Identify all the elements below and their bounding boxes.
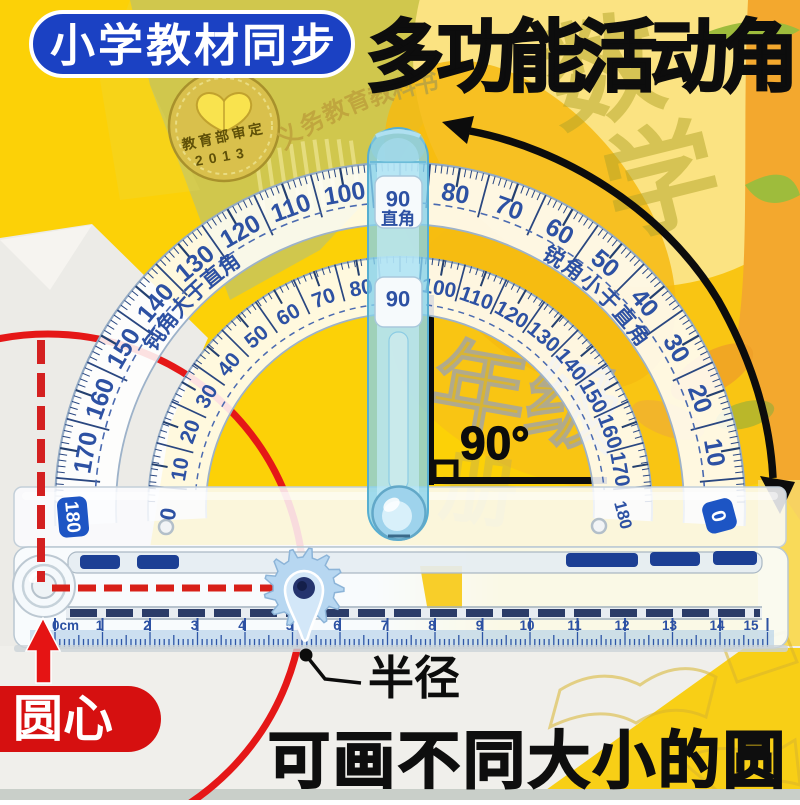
svg-text:直角: 直角 <box>381 209 415 229</box>
svg-text:6: 6 <box>333 618 341 633</box>
svg-text:13: 13 <box>662 618 678 633</box>
svg-text:10: 10 <box>698 436 730 468</box>
svg-text:圆心: 圆心 <box>13 691 113 747</box>
svg-text:12: 12 <box>614 618 629 633</box>
svg-text:10: 10 <box>167 456 194 483</box>
svg-text:8: 8 <box>428 618 436 633</box>
svg-text:90: 90 <box>386 287 410 312</box>
svg-text:14: 14 <box>709 618 725 633</box>
svg-text:2: 2 <box>143 618 151 633</box>
svg-text:3: 3 <box>191 618 199 633</box>
svg-text:半径: 半径 <box>368 652 460 704</box>
svg-text:80: 80 <box>439 178 471 210</box>
svg-text:10: 10 <box>519 618 534 633</box>
svg-text:可画不同大小的圆: 可画不同大小的圆 <box>268 727 788 796</box>
svg-text:4: 4 <box>238 618 246 633</box>
svg-text:多功能活动角: 多功能活动角 <box>366 13 792 101</box>
svg-text:9: 9 <box>476 618 484 633</box>
svg-text:180: 180 <box>60 500 84 533</box>
svg-text:小学教材同步: 小学教材同步 <box>50 20 338 71</box>
svg-text:11: 11 <box>567 618 582 633</box>
svg-text:1: 1 <box>96 618 104 633</box>
svg-text:7: 7 <box>381 618 389 633</box>
svg-text:90°: 90° <box>460 417 530 469</box>
svg-text:15: 15 <box>743 618 759 633</box>
svg-text:0cm: 0cm <box>52 618 79 633</box>
svg-text:90: 90 <box>386 187 410 212</box>
